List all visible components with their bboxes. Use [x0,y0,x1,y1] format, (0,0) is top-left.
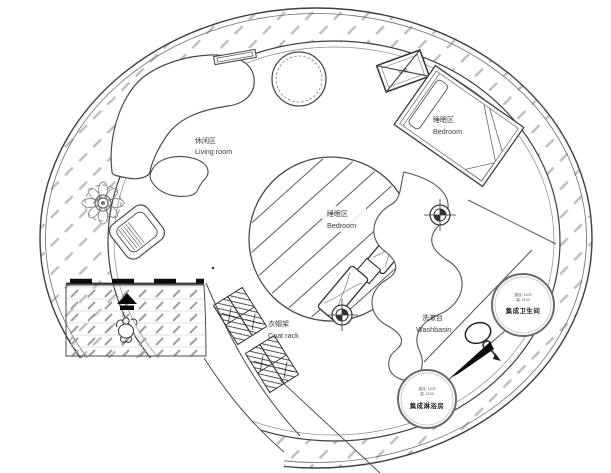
shower-pod-spec-diameter: 直径: 1100 [419,386,436,391]
bathroom-pod-spec-height: 高: 2100 [516,297,530,302]
living-room-label: 休闲区 Living room [195,136,232,156]
bathroom-pod: 直径: 1100 高: 2100 集成卫生间 [492,274,554,336]
reference-dot [212,267,215,270]
bathroom-pod-name: 集成卫生间 [505,306,540,315]
washbasin-label-en: Washbasin [416,325,451,334]
washbasin-label-zh: 洗漱台 [422,313,443,322]
coat-rack-label: 衣帽架 Coat rack [268,319,299,340]
round-table [272,52,326,106]
bedroom-window-label-en: Bedroom [433,127,462,136]
floor-plan: 空调 [0,0,611,473]
bedroom-loft-label-en: Bedroom [327,221,356,230]
window-wall [66,281,204,284]
flow-arrow-icon [450,342,494,378]
coat-rack-icon [245,335,298,392]
coat-rack-icon [213,287,266,344]
living-room-label-en: Living room [195,147,232,156]
shower-pod-spec-height: 高: 2100 [420,391,434,396]
bedroom-loft-label: 睡眠区 Bedroom [322,206,366,232]
coat-rack-label-zh: 衣帽架 [268,319,289,328]
plan-cutout [0,356,284,473]
bedroom-window-label-zh: 睡眠区 [433,116,454,124]
bathroom-pod-spec-diameter: 直径: 1100 [515,292,532,297]
shower-pod: 直径: 1100 高: 2100 集成淋浴房 [398,370,456,428]
floor-plan-canvas: 空调 [0,0,611,473]
coffee-table [150,157,208,197]
shower-pod-name: 集成淋浴房 [409,401,445,410]
living-room-label-zh: 休闲区 [195,136,216,145]
bedroom-loft-label-zh: 睡眠区 [327,210,348,218]
armchair [106,201,168,262]
coat-rack-label-en: Coat rack [268,331,299,340]
